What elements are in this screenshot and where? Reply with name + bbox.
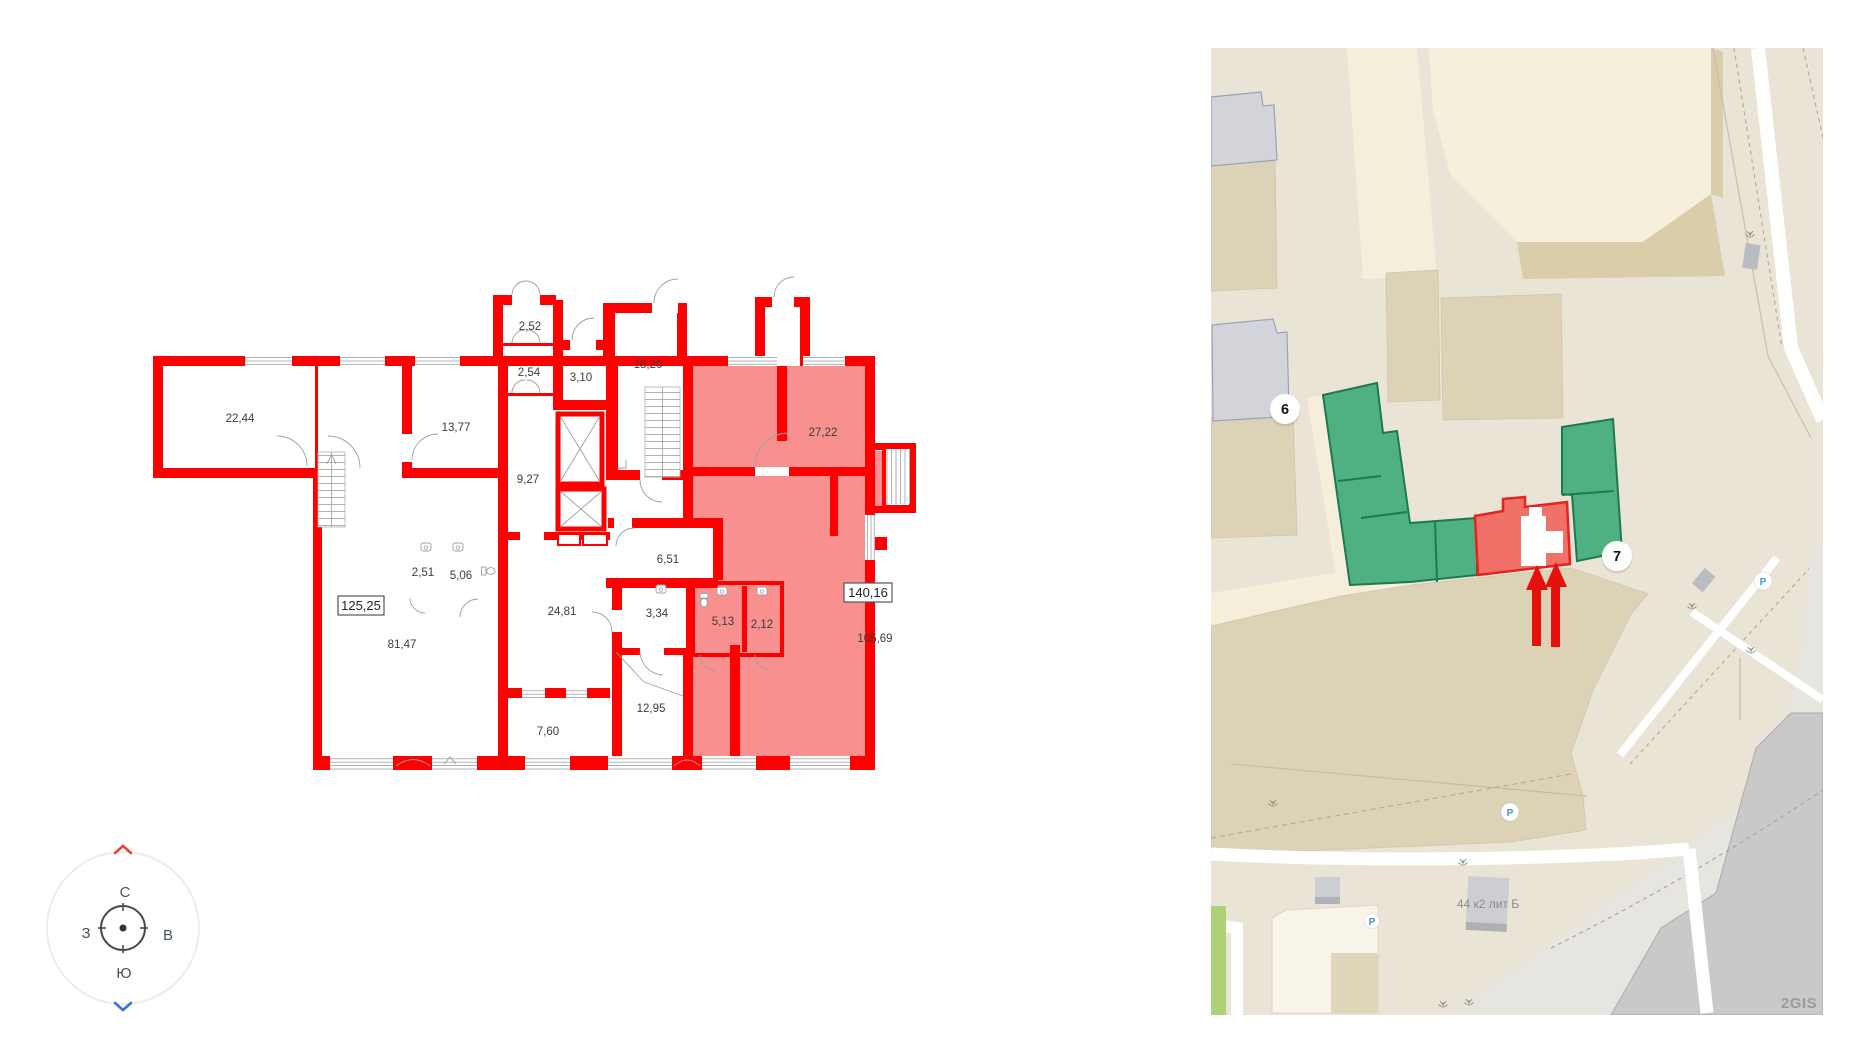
svg-text:6: 6 — [1281, 402, 1289, 418]
floor-plan: 22,44 13,77 2,52 2,54 3,10 18,20 9,27 27… — [40, 235, 930, 1015]
unit-total-left: 125,25 — [341, 598, 381, 613]
room-area-label: 9,27 — [517, 474, 539, 486]
compass: С Ю З В — [47, 846, 199, 1010]
room-area-label: 3,34 — [646, 608, 669, 620]
compass-south-label: Ю — [116, 965, 131, 982]
parking-icon[interactable]: P — [1365, 914, 1380, 929]
room-area-label: 2,52 — [519, 321, 541, 333]
room-area-label: 5,13 — [712, 616, 734, 628]
parking-icon[interactable]: P — [1501, 803, 1519, 821]
svg-text:7: 7 — [1613, 549, 1621, 565]
room-area-label: 22,44 — [226, 413, 255, 425]
map-grass — [1211, 906, 1226, 1015]
screenshot-root: 22,44 13,77 2,52 2,54 3,10 18,20 9,27 27… — [0, 0, 1872, 1062]
compass-north-label: С — [120, 884, 131, 901]
marker-7[interactable]: 7 — [1602, 541, 1633, 574]
map-white-building — [1272, 905, 1378, 1013]
room-area-label: 7,60 — [537, 726, 559, 738]
room-area-label: 5,06 — [450, 570, 472, 582]
map-panel[interactable]: P P P 44 к2 лит Б 2GIS 6 7 — [1211, 48, 1823, 1015]
room-area-label: 13,77 — [442, 422, 471, 434]
unit-total-right: 140,16 — [848, 585, 888, 600]
svg-text:P: P — [1760, 577, 1767, 588]
room-area-label: 24,81 — [548, 606, 577, 618]
room-area-label: 81,47 — [388, 639, 417, 651]
room-area-label: 2,54 — [518, 367, 541, 379]
compass-east-label: В — [163, 927, 173, 944]
parking-icon[interactable]: P — [1754, 572, 1772, 590]
compass-west-label: З — [81, 925, 90, 942]
room-area-label: 105,69 — [857, 633, 892, 645]
map-watermark: 2GIS — [1781, 995, 1817, 1012]
svg-text:P: P — [1369, 917, 1376, 928]
room-area-label: 2,51 — [412, 567, 434, 579]
svg-text:P: P — [1507, 808, 1514, 819]
marker-6[interactable]: 6 — [1270, 394, 1301, 427]
room-area-label: 18,20 — [634, 359, 663, 371]
room-area-label: 3,10 — [570, 372, 592, 384]
elevator-shafts — [558, 414, 607, 545]
room-area-label: 2,12 — [751, 619, 773, 631]
map-canvas[interactable]: P P P 44 к2 лит Б 2GIS 6 7 — [1211, 48, 1823, 1015]
room-area-label: 27,22 — [809, 427, 838, 439]
room-area-label: 12,95 — [637, 703, 666, 715]
compass-center-dot — [120, 925, 127, 932]
map-building-address-label: 44 к2 лит Б — [1457, 897, 1519, 911]
room-area-label: 6,51 — [657, 554, 679, 566]
